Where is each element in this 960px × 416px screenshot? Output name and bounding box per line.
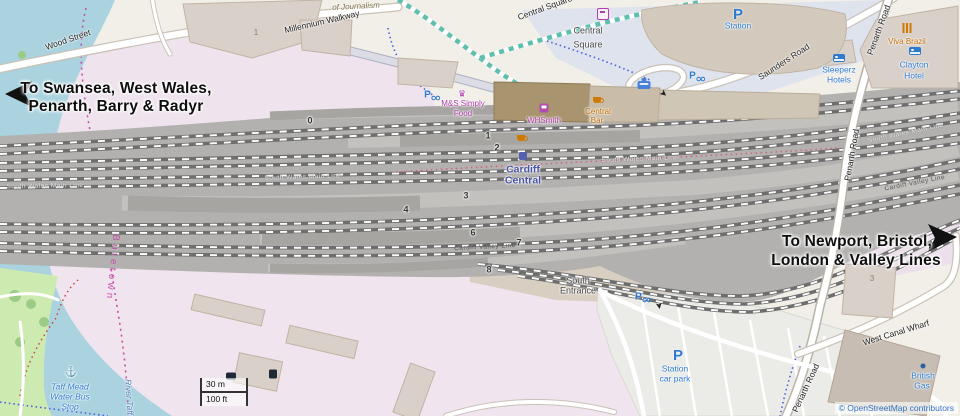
bicycle-icon — [642, 297, 651, 303]
british-gas-label-line1: British — [911, 372, 935, 381]
osm-attribution-link[interactable]: © OpenStreetMap contributors — [835, 402, 958, 414]
charging-station-icon — [269, 370, 277, 379]
map-canvas[interactable]: To Swansea, West Wales, Penarth, Barry &… — [0, 0, 960, 416]
building-number-1: 1 — [254, 29, 258, 37]
platform-number-2: 2 — [494, 143, 499, 152]
sleeperz-hotels-label-line2: Hotels — [827, 76, 851, 85]
bicycle-icon — [431, 95, 440, 101]
ms-simply-food-label-line1: M&S Simply — [441, 100, 485, 108]
ms-crown-icon: ♛ — [458, 89, 466, 98]
direction-west-line1: To Swansea, West Wales, — [20, 81, 211, 97]
bicycle-icon — [696, 76, 705, 82]
car-park-parking-icon: P — [673, 348, 683, 364]
building-number-3: 3 — [870, 275, 874, 283]
central-square-label-line1: Central — [573, 26, 602, 35]
platform-number-7: 7 — [516, 238, 521, 247]
railway-station-icon — [519, 152, 527, 160]
sleeperz-bed-icon — [833, 54, 845, 62]
british-gas-poi-icon — [921, 364, 926, 369]
scale-imperial: 100 ft — [200, 393, 248, 406]
restaurant-icon — [903, 23, 912, 33]
station-parking-label: Station — [725, 22, 751, 31]
clayton-hotel-label-line1: Clayton — [900, 61, 929, 70]
parking-bicycle-icon-1: P — [424, 90, 440, 101]
central-bar-label-line2: Bar — [591, 117, 603, 125]
platform-number-4: 4 — [403, 205, 408, 214]
river-taff-label: River Taff — [123, 379, 134, 416]
ms-simply-food-label-line2: Food — [454, 110, 472, 118]
central-square-label-line2: Square — [573, 40, 602, 49]
direction-west-line2: Penarth, Barry & Radyr — [29, 99, 204, 115]
platform-number-0: 0 — [307, 116, 312, 125]
platform-number-8: 8 — [486, 265, 491, 274]
platform-number-1: 1 — [485, 131, 490, 140]
whsmith-shop-icon — [540, 104, 549, 113]
taxi-icon — [638, 81, 651, 89]
sleeperz-hotels-label-line1: Sleeperz — [822, 66, 856, 75]
parking-bicycle-icon-3: P — [635, 292, 651, 303]
parking-letter: P — [424, 90, 431, 101]
clayton-bed-icon — [909, 47, 921, 55]
whsmith-label: WHSmith — [527, 117, 561, 125]
central-bar-cafe-icon — [593, 97, 601, 103]
direction-east-line1: To Newport, Bristol, — [782, 234, 932, 250]
building-3 — [842, 264, 896, 318]
map-base-layer — [0, 0, 960, 416]
parking-letter: P — [635, 292, 642, 303]
viva-brazil-label: Viva Brazil — [888, 38, 926, 46]
water-bus-label-line3: Stop — [61, 403, 79, 412]
platform-number-6: 6 — [470, 228, 475, 237]
clayton-hotel-label-line2: Hotel — [904, 72, 924, 81]
south-entrance-label-line2: Entrance — [560, 286, 596, 295]
station-car-park-label-line1: Station — [662, 365, 688, 374]
direction-east-line2: London & Valley Lines — [771, 253, 941, 269]
scale-bar: 30 m 100 ft — [200, 378, 248, 406]
rail-label-main-line-1: South Wales Main Line — [6, 183, 83, 191]
platform-number-3: 3 — [463, 191, 468, 200]
station-name-line2: Central — [505, 175, 541, 186]
platform-cafe-icon — [517, 135, 525, 141]
station-car-park-label-line2: car park — [660, 375, 691, 384]
parking-letter: P — [689, 71, 696, 82]
british-gas-label-line2: Gas — [914, 382, 930, 391]
water-bus-label-line1: Taff Mead — [51, 383, 89, 392]
water-bus-anchor-icon: ⚓ — [65, 368, 77, 379]
parking-bicycle-icon-2: P — [689, 71, 705, 82]
ticket-machine-icon — [597, 8, 609, 20]
scale-metric: 30 m — [200, 378, 248, 393]
water-bus-label-line2: Water Bus — [50, 393, 90, 402]
